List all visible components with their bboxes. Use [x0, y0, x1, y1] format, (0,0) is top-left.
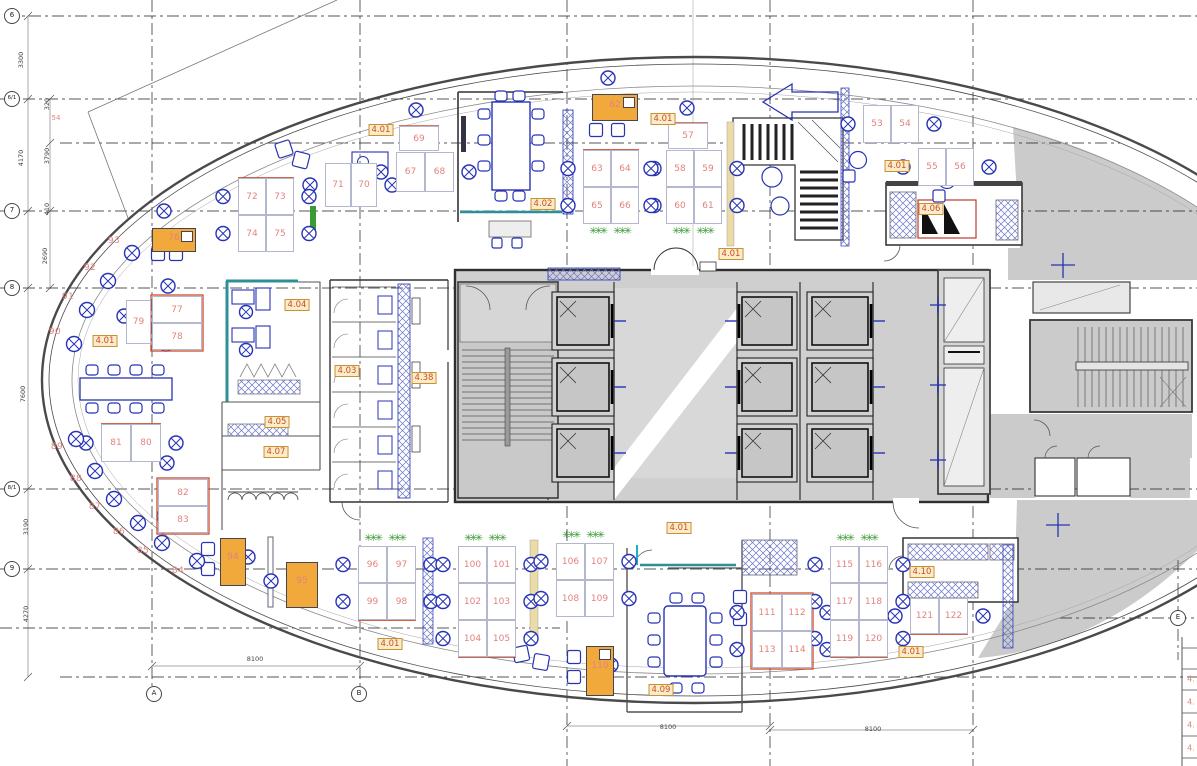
side-table-icon [568, 671, 581, 684]
orange-desk: 94 [220, 538, 246, 586]
desk-number: 79 [133, 317, 144, 327]
desk: 70 [351, 163, 377, 207]
room-tag: 4.09 [649, 684, 674, 696]
desk: 113 [752, 631, 782, 668]
desk-number: 107 [591, 557, 608, 567]
meeting-table [664, 606, 706, 676]
desk: 106 [556, 543, 585, 580]
desk: 112 [782, 594, 812, 631]
plant-icon: ✳✳✳ [388, 533, 404, 544]
desk-number: 105 [493, 634, 510, 644]
desk: 80 [131, 424, 161, 462]
room-tag: 4.01 [378, 638, 403, 650]
dimension-label: 8100 [865, 725, 882, 733]
side-table-icon [275, 140, 294, 159]
dimension-label: 4270 [22, 606, 30, 623]
desk: 68 [425, 152, 454, 192]
desk-number: 96 [367, 560, 378, 570]
desk: 58 [666, 150, 694, 187]
plan-geometry [1077, 458, 1130, 496]
desk: 63 [583, 150, 611, 187]
grid-bubble: 6/1 [4, 91, 20, 107]
meeting-table [492, 102, 530, 190]
plan-geometry [334, 439, 348, 453]
side-table-icon [590, 124, 603, 137]
desk: 97 [387, 546, 416, 583]
side-table-icon [568, 651, 581, 664]
plan-geometry [990, 414, 1192, 458]
desk: 109 [585, 580, 614, 617]
desk: 72 [238, 178, 266, 215]
desk-number: 64 [619, 164, 630, 174]
dimension-label: 3300 [17, 52, 25, 69]
plan-geometry [238, 380, 300, 394]
legend-row-code: 4. [1187, 698, 1195, 707]
plan-geometry [651, 266, 699, 275]
desk: 100 [458, 546, 487, 583]
chair-icon [710, 635, 722, 645]
desk-number: 68 [434, 167, 445, 177]
dimension-label: 8100 [247, 655, 264, 663]
chair-icon [108, 403, 120, 413]
plant-icon: ✳✳✳ [488, 533, 504, 544]
seat-number: 92 [84, 263, 96, 273]
cabinet-hatched [548, 268, 620, 280]
plan-geometry [841, 88, 849, 246]
desk-number: 114 [788, 645, 805, 655]
desk: 79 [126, 300, 151, 344]
room-tag: 4.02 [531, 198, 556, 210]
chair-icon [532, 135, 544, 145]
plan-geometry [742, 297, 792, 345]
chair-icon [130, 403, 142, 413]
desk-number: 109 [591, 594, 608, 604]
plan-geometry [412, 426, 420, 452]
wc-fixture [378, 366, 392, 384]
desk-number: 100 [464, 560, 481, 570]
plan-geometry [88, 112, 128, 218]
chair-icon [648, 613, 660, 623]
desk: 77 [152, 296, 202, 323]
chair-icon [152, 365, 164, 375]
chair-icon [692, 593, 704, 603]
chair-icon [478, 135, 490, 145]
grid-bubble: 7 [4, 203, 20, 219]
desk: 96 [358, 546, 387, 583]
plan-geometry [557, 429, 609, 477]
desk: 75 [266, 215, 294, 252]
room-tag: 4.01 [93, 335, 118, 347]
seat-number: 84 [172, 566, 184, 576]
desk-number: 66 [619, 201, 630, 211]
side-table-icon [512, 238, 522, 248]
orange-desk: 62 [592, 94, 638, 121]
seat-number: 85 [137, 546, 149, 556]
plant-icon: ✳✳✳ [836, 533, 852, 544]
wc-fixture [378, 471, 392, 489]
side-table-icon [734, 591, 747, 604]
plan-geometry [1003, 545, 1013, 648]
desk-return [181, 231, 193, 242]
desk: 69 [399, 126, 439, 151]
chair-icon [495, 91, 507, 101]
desk: 111 [752, 594, 782, 631]
desk: 99 [358, 583, 387, 620]
desk-number: 99 [367, 597, 378, 607]
plan-geometry [334, 404, 348, 418]
legend-row-code: 4. [1187, 721, 1195, 730]
chair-icon [86, 365, 98, 375]
wall-hatched [398, 284, 410, 498]
chair-icon [648, 635, 660, 645]
desk-number: 116 [865, 560, 882, 570]
desk-number: 75 [274, 229, 285, 239]
plan-geometry [88, 0, 337, 112]
desk-number: 122 [945, 611, 962, 621]
room-tag: 4.01 [719, 248, 744, 260]
desk-number: 115 [836, 560, 853, 570]
desk-number: 117 [836, 597, 853, 607]
room-tag: 4.01 [369, 124, 394, 136]
chair-icon [648, 657, 660, 667]
chair-icon [710, 657, 722, 667]
plan-geometry [342, 502, 360, 520]
plan-geometry [812, 429, 868, 477]
desk-number: 118 [865, 597, 882, 607]
plan-geometry [423, 538, 433, 644]
plan-geometry [890, 192, 916, 238]
side-table-icon [202, 543, 215, 556]
chair-icon [152, 403, 164, 413]
lounge-chair-icon [771, 197, 789, 215]
plan-geometry [990, 458, 1035, 498]
desk-number: 111 [758, 608, 775, 618]
desk: 107 [585, 543, 614, 580]
dimension-label: 3790 [43, 148, 51, 165]
seat-number: 87 [89, 502, 101, 512]
desk: 55 [918, 148, 946, 186]
desk-number: 78 [171, 332, 182, 342]
plan-geometry [412, 298, 420, 324]
plan-geometry [944, 346, 984, 364]
desk: 102 [458, 583, 487, 620]
desk: 82 [158, 479, 208, 506]
desk: 78 [152, 323, 202, 350]
legend-row-code: 4. [1187, 675, 1195, 684]
desk: 73 [266, 178, 294, 215]
desk: 74 [238, 215, 266, 252]
desk: 121 [910, 598, 939, 634]
side-table-icon [843, 170, 855, 182]
desk-number: 73 [274, 192, 285, 202]
grid-bubble: E [1170, 610, 1186, 626]
chair-icon [532, 161, 544, 171]
side-table-icon [933, 190, 945, 202]
plan-geometry [232, 290, 254, 304]
desk-number: 55 [926, 162, 937, 172]
desk-number: 74 [246, 229, 257, 239]
wc-fixture [378, 401, 392, 419]
side-table-icon [492, 238, 502, 248]
desk: 103 [487, 583, 516, 620]
plant-icon: ✳✳✳ [613, 226, 629, 237]
plant-icon: ✳✳✳ [672, 226, 688, 237]
plan-geometry [557, 297, 609, 345]
desk: 67 [396, 152, 425, 192]
desk: 120 [859, 620, 888, 657]
plan-geometry [256, 326, 270, 348]
chair-icon [692, 683, 704, 693]
plan-geometry [1008, 127, 1197, 280]
plan-geometry [908, 582, 978, 598]
desk-number: 53 [871, 119, 882, 129]
desk-number: 70 [358, 180, 369, 190]
grid-bubble: 8/1 [4, 481, 20, 497]
desk-number: 82 [177, 488, 188, 498]
desk-return [599, 649, 611, 660]
plan-geometry [884, 245, 900, 261]
desk: 115 [830, 546, 859, 583]
plan-geometry [334, 334, 348, 348]
desk: 54 [891, 105, 919, 143]
long-table [80, 378, 172, 400]
room-tag: 4.01 [651, 113, 676, 125]
room-tag: 4.04 [285, 299, 310, 311]
plan-geometry [812, 363, 868, 411]
desk: 116 [859, 546, 888, 583]
desk-number: 112 [788, 608, 805, 618]
desk-return [623, 97, 635, 108]
plan-geometry [268, 537, 273, 607]
grid-bubble: 9 [4, 561, 20, 577]
side-table-icon [612, 124, 625, 137]
plan-geometry [1035, 458, 1075, 496]
plant-icon: ✳✳✳ [589, 226, 605, 237]
plan-geometry [742, 540, 797, 575]
desk: 98 [387, 583, 416, 620]
desk-number: 67 [405, 167, 416, 177]
room-tag: 4.07 [264, 446, 289, 458]
plan-geometry [812, 297, 868, 345]
lounge-chair-icon [762, 167, 782, 187]
grid-bubble: B [351, 686, 367, 702]
desk-number: 54 [899, 119, 910, 129]
desk-number: 119 [836, 634, 853, 644]
desk-number: 95 [296, 576, 307, 586]
desk-number: 101 [493, 560, 510, 570]
chair-icon [670, 593, 682, 603]
desk: 53 [863, 105, 891, 143]
plan-geometry [505, 348, 510, 446]
chair-icon [710, 613, 722, 623]
chair-icon [513, 91, 525, 101]
plant-icon: ✳✳✳ [586, 530, 602, 541]
plan-geometry [557, 363, 609, 411]
room-tag: 4.10 [910, 566, 935, 578]
seat-number: 93 [108, 236, 120, 246]
plant-icon: ✳✳✳ [562, 530, 578, 541]
room-tag: 4.01 [899, 646, 924, 658]
chair-icon [108, 365, 120, 375]
desk: 66 [611, 187, 639, 224]
grid-bubble: A [146, 686, 162, 702]
wc-fixture [378, 296, 392, 314]
side-table-icon [292, 151, 310, 169]
room-tag: 4.01 [885, 160, 910, 172]
plan-geometry [1130, 458, 1190, 498]
floor-plan-sheet: 4.014.014.014.024.064.014.044.014.034.38… [0, 0, 1197, 766]
chair-icon [478, 161, 490, 171]
dimension-label: 4170 [17, 150, 25, 167]
desk-number: 104 [464, 634, 481, 644]
desk: 119 [830, 620, 859, 657]
dimension-label: 7600 [19, 386, 27, 403]
plant-icon: ✳✳✳ [860, 533, 876, 544]
desk-number: 120 [865, 634, 882, 644]
room-tag: 4.06 [919, 203, 944, 215]
grid-bubble: 8 [4, 280, 20, 296]
desk: 83 [158, 506, 208, 533]
desk-number: 69 [413, 134, 424, 144]
room-tag: 4.03 [335, 365, 360, 377]
desk-number: 65 [591, 201, 602, 211]
plan-geometry [530, 540, 538, 640]
desk-number: 58 [674, 164, 685, 174]
plan-geometry [232, 328, 254, 342]
plan-geometry [240, 364, 296, 377]
plan-geometry [461, 116, 466, 152]
desk-number: 61 [702, 201, 713, 211]
desk: 104 [458, 620, 487, 657]
desk: 81 [101, 424, 131, 462]
desk: 59 [694, 150, 722, 187]
desk-number: 80 [140, 438, 151, 448]
desk-number: 94 [227, 552, 238, 562]
desk-number: 97 [396, 560, 407, 570]
desk: 64 [611, 150, 639, 187]
plan-geometry [1076, 362, 1188, 370]
grid-bubble: 6 [4, 8, 20, 24]
room-tag: 4.38 [412, 372, 437, 384]
room-tag: 4.01 [667, 522, 692, 534]
plan-geometry [908, 544, 988, 560]
plan-geometry [893, 498, 919, 506]
plant-icon: ✳✳✳ [364, 533, 380, 544]
desk: 60 [666, 187, 694, 224]
orange-desk: 110 [586, 646, 614, 696]
desk: 114 [782, 631, 812, 668]
desk-number: 102 [464, 597, 481, 607]
plan-geometry [763, 84, 838, 120]
desk-number: 56 [954, 162, 965, 172]
plan-geometry [460, 284, 556, 342]
plant-icon: ✳✳✳ [464, 533, 480, 544]
plant-icon: ✳✳✳ [696, 226, 712, 237]
plan-geometry [850, 152, 867, 169]
desk-number: 98 [396, 597, 407, 607]
orange-desk: 76 [152, 228, 196, 252]
plan-geometry [334, 299, 348, 313]
plan-geometry [334, 474, 348, 488]
chair-icon [130, 365, 142, 375]
dimension-label: 410 [43, 203, 51, 215]
chair-icon [532, 109, 544, 119]
desk-number: 83 [177, 515, 188, 525]
desk: 105 [487, 620, 516, 657]
dimension-label: 3190 [22, 519, 30, 536]
plan-geometry [700, 262, 716, 271]
plan-geometry [256, 288, 270, 310]
chair-icon [478, 109, 490, 119]
desk: 101 [487, 546, 516, 583]
dimension-label: 8100 [660, 723, 677, 731]
desk-number: 60 [674, 201, 685, 211]
side-table-icon [532, 653, 549, 670]
desk-number: 81 [110, 438, 121, 448]
plan-geometry [742, 363, 792, 411]
seat-number: 91 [62, 292, 74, 302]
desk: 65 [583, 187, 611, 224]
desk: 117 [830, 583, 859, 620]
plan-geometry [727, 122, 734, 246]
desk-number: 57 [682, 131, 693, 141]
desk-number: 59 [702, 164, 713, 174]
desk-number: 76 [168, 233, 179, 243]
chair-icon [513, 191, 525, 201]
desk-number: 71 [332, 180, 343, 190]
dimension-label: 2690 [41, 248, 49, 265]
desk-number: 103 [493, 597, 510, 607]
plan-geometry [489, 221, 531, 237]
dimension-label: 320 [43, 98, 51, 110]
orange-desk: 95 [286, 562, 318, 608]
desk-number: 106 [562, 557, 579, 567]
desk: 122 [939, 598, 968, 634]
desk-number: 62 [609, 100, 620, 110]
red-note: 54 [52, 114, 61, 122]
desk: 71 [325, 163, 351, 207]
room-tag: 4.05 [265, 416, 290, 428]
desk-number: 63 [591, 164, 602, 174]
plan-geometry [228, 493, 298, 500]
desk: 108 [556, 580, 585, 617]
desk-number: 72 [246, 192, 257, 202]
desk-number: 77 [171, 305, 182, 315]
chair-icon [495, 191, 507, 201]
seat-number: 86 [113, 527, 125, 537]
desk-number: 110 [591, 661, 608, 671]
seat-number: 88 [70, 474, 82, 484]
plan-geometry [742, 429, 792, 477]
legend-row-code: 4. [1187, 744, 1195, 753]
seat-number: 90 [49, 327, 61, 337]
desk: 57 [668, 123, 708, 149]
desk-number: 108 [562, 594, 579, 604]
desk-number: 113 [758, 645, 775, 655]
desk: 56 [946, 148, 974, 186]
desk: 61 [694, 187, 722, 224]
seat-number: 89 [51, 442, 63, 452]
desk: 118 [859, 583, 888, 620]
wc-fixture [378, 331, 392, 349]
plan-geometry [996, 200, 1018, 240]
desk-number: 121 [916, 611, 933, 621]
wc-fixture [378, 436, 392, 454]
chair-icon [86, 403, 98, 413]
